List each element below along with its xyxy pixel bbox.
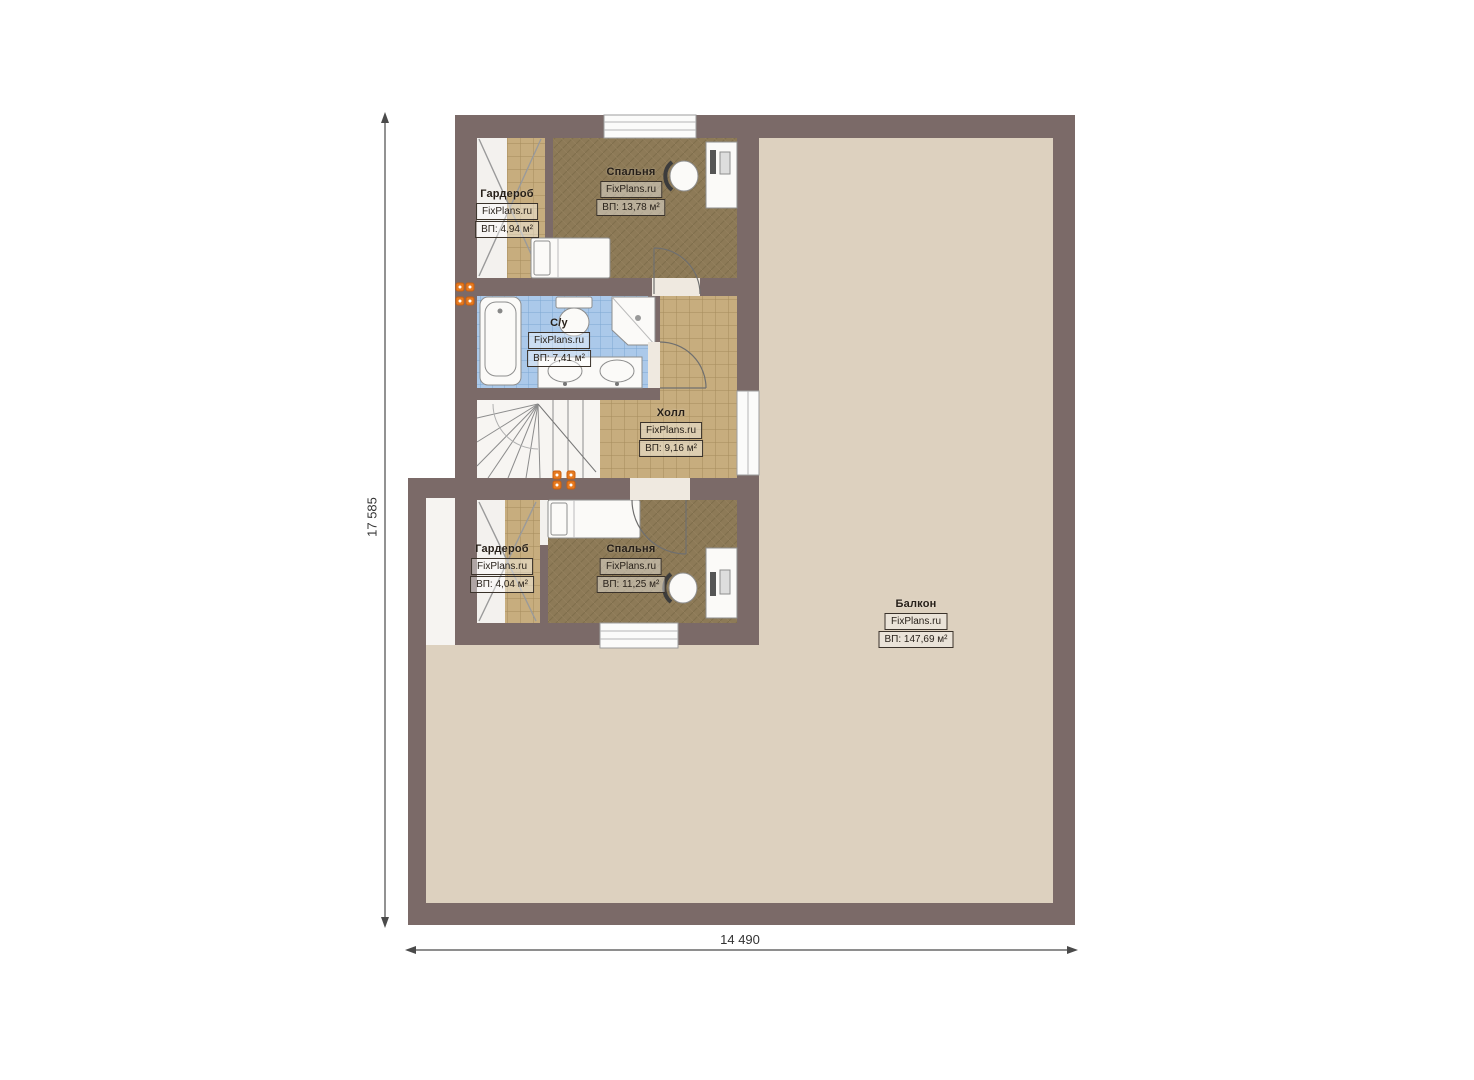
floor-plan-drawing [0,0,1474,1080]
brand-tag: FixPlans.ru [600,558,662,575]
chair-bedroom2 [669,573,697,603]
brand-tag: FixPlans.ru [600,181,662,198]
room-label-bedroom2: Спальня FixPlans.ru ВП: 11,25 м² [597,543,666,593]
brand-tag: FixPlans.ru [471,558,533,575]
room-label-bedroom1: Спальня FixPlans.ru ВП: 13,78 м² [596,166,665,216]
room-label-wardrobe2: Гардероб FixPlans.ru ВП: 4,04 м² [470,543,534,593]
room-name: Спальня [607,166,656,179]
toilet [556,297,592,308]
brand-tag: FixPlans.ru [640,422,702,439]
room-name: Гардероб [480,188,534,201]
room-name: Балкон [896,598,937,611]
room-label-bathroom: С/у FixPlans.ru ВП: 7,41 м² [527,317,591,367]
room-name: Гардероб [475,543,529,556]
door-gap-wardrobe2 [540,500,548,545]
room-area: ВП: 4,04 м² [470,576,534,593]
room-area: ВП: 7,41 м² [527,350,591,367]
room-area: ВП: 147,69 м² [879,631,954,648]
room-area: ВП: 11,25 м² [597,576,666,593]
room-name: Холл [657,407,685,420]
room-area: ВП: 13,78 м² [596,199,665,216]
floor-side-strip [426,498,455,645]
brand-tag: FixPlans.ru [528,332,590,349]
floor-plan-page: Гардероб FixPlans.ru ВП: 4,94 м² Спальня… [0,0,1474,1080]
room-label-wardrobe1: Гардероб FixPlans.ru ВП: 4,94 м² [475,188,539,238]
brand-tag: FixPlans.ru [476,203,538,220]
brand-tag: FixPlans.ru [885,613,947,630]
room-area: ВП: 4,94 м² [475,221,539,238]
window-bedroom2 [600,623,678,648]
room-name: С/у [550,317,568,330]
room-label-hall: Холл FixPlans.ru ВП: 9,16 м² [639,407,703,457]
room-area: ВП: 9,16 м² [639,440,703,457]
room-label-balcony: Балкон FixPlans.ru ВП: 147,69 м² [879,598,954,648]
room-name: Спальня [607,543,656,556]
dimension-horizontal-label: 14 490 [720,932,760,947]
window-bedroom1 [604,115,696,138]
dimension-vertical-label: 17 585 [365,497,380,537]
floor-hall-upper [660,296,737,400]
chair-bedroom1 [670,161,698,191]
